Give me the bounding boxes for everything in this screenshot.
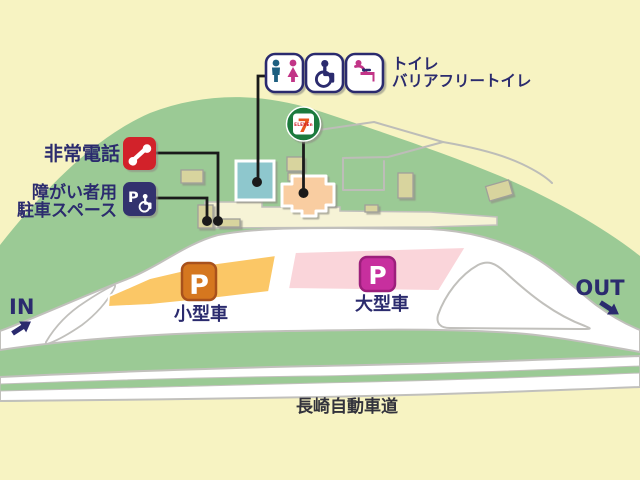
seven-eleven-wordmark: ELEVEn [294, 122, 313, 127]
parking-badge-small-letter: P [189, 270, 209, 301]
service-building [181, 170, 203, 183]
parking-label-large-vehicles: 大型車 [355, 293, 409, 315]
accessible-parking-icon-letter: P [128, 190, 139, 206]
parking-badge-large: P [360, 257, 395, 291]
location-dot-accessible-parking [202, 216, 212, 226]
barrier-free-toilet-label: バリアフリートイレ [392, 72, 532, 90]
highway-name: 長崎自動車道 [296, 396, 398, 417]
service-area-map: P 小型車 P 大型車 [0, 0, 640, 480]
accessible-parking-label-line2: 駐車スペース [17, 200, 117, 221]
parking-badge-small: P [182, 263, 216, 301]
location-dot-emergency-phone [213, 216, 223, 226]
mens-womens-toilet-icon-box [266, 54, 303, 92]
service-building [287, 157, 304, 171]
accessible-parking-icon: P [123, 182, 156, 216]
service-building [365, 205, 378, 212]
parking-label-small-vehicles: 小型車 [174, 303, 228, 325]
seven-eleven-logo: 7 ELEVEn [287, 107, 321, 141]
entrance-label: IN [9, 295, 34, 319]
service-building [398, 173, 413, 198]
emergency-phone-icon [123, 137, 156, 170]
location-dot-store [299, 188, 309, 198]
exit-label: OUT [575, 276, 625, 300]
location-dot-toilet [252, 177, 262, 187]
emergency-phone-label: 非常電話 [44, 142, 120, 165]
toilet-label: トイレ [392, 55, 439, 73]
accessible-parking-label-line1: 障がい者用 [32, 182, 117, 203]
parking-badge-large-letter: P [368, 261, 386, 290]
